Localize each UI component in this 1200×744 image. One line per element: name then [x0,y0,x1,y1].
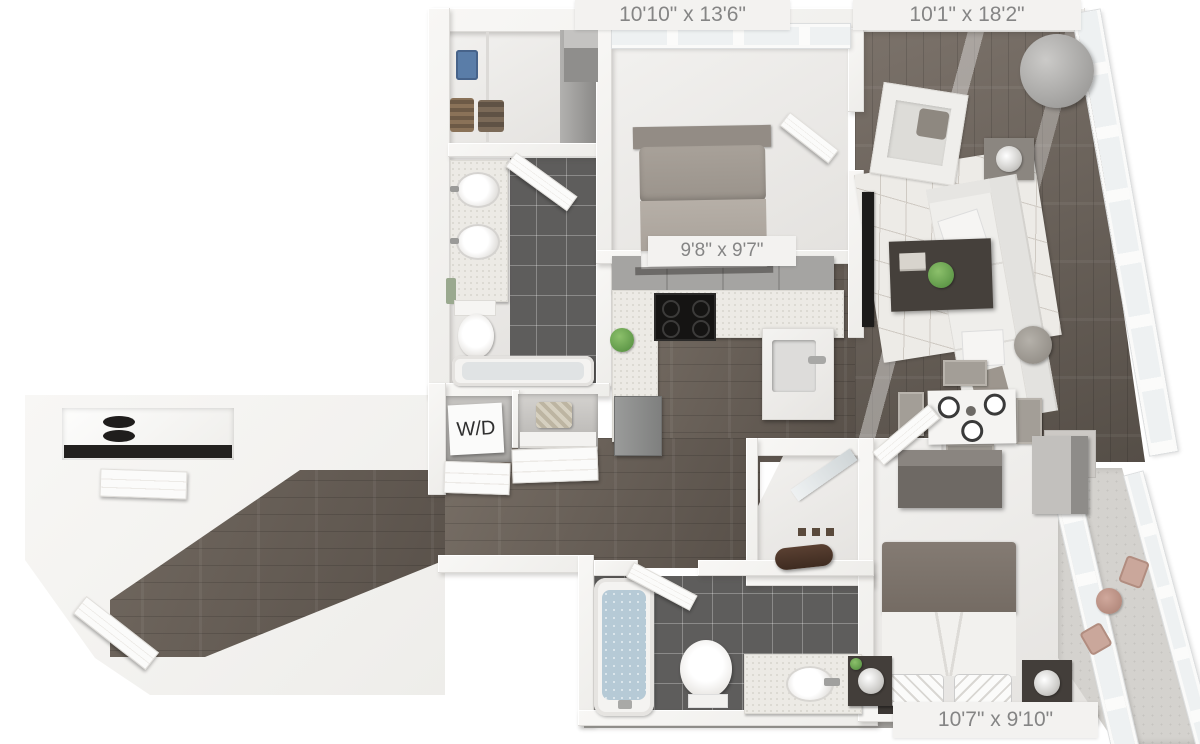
bathtub2 [594,578,654,716]
refrigerator [614,396,662,456]
kitchen-plant [610,328,634,352]
wicker-basket [536,402,572,428]
dining-table [928,389,1017,445]
island-sink-basin [772,340,816,392]
round-column [1020,34,1094,108]
table-vase [966,406,976,416]
toilet2-bowl [680,640,732,698]
bathtub2-faucet [618,700,632,709]
wall-left [428,8,450,398]
closet2-shoes [798,528,834,536]
wall-hallway-bottom [438,555,590,573]
faucet-1 [450,186,459,192]
lamp-left [858,668,884,694]
coffee-table-plant [928,262,955,289]
coffee-table-books [899,253,926,270]
vanity-sink-1 [456,172,500,208]
wardrobe-top [898,450,1002,466]
place-setting-2 [984,393,1006,415]
burner-2 [692,300,710,318]
wd-closet-door [443,461,510,495]
bistro-table [1096,588,1122,614]
vanity-sink-2 [456,224,500,260]
wall-kitchen-left [596,262,612,387]
bed1-pillows [639,145,766,203]
nightstand-right [1022,660,1072,708]
coffee-table [889,238,993,312]
nightstand-left [848,656,892,706]
nightstand-plant [850,658,862,670]
label-living-dimensions: 10'1" x 18'2" [853,0,1081,30]
bed-2 [878,538,1020,714]
label-kitchen-dimensions: 9'8" x 9'7" [648,236,796,266]
linen-closet-door [511,447,598,484]
wardrobe-front [898,466,1002,508]
bed2-duvet [882,612,1016,676]
burner-1 [662,300,680,318]
lamp-right [1034,670,1060,696]
wall-bedroom1-left [596,28,612,264]
place-setting-1 [938,396,960,418]
faucet-2 [450,238,459,244]
bed2-blanket [882,542,1016,614]
armchair [869,82,968,186]
label-bedroom1-dimensions: 10'10" x 13'6" [575,0,790,30]
washer-dryer-unit: W/D [448,403,505,456]
folded-towel [456,50,478,80]
floor-plan: W/D [0,0,1200,744]
side-table-lamp-shade [1014,326,1052,364]
linen-shelf [520,432,596,448]
wardrobe [898,450,1002,508]
vanity2-faucet [824,678,840,686]
burner-3 [662,320,680,338]
bedroom1-column [564,30,598,82]
island-faucet [808,356,826,364]
table-lamp-north [996,146,1022,172]
armchair-pillow [916,108,950,140]
shoe-right [103,430,135,442]
wall-bath2-left [578,555,594,725]
bathtub1-basin [462,362,584,380]
wall-bedroom1-living-a [848,28,864,112]
shoe-left [103,416,135,428]
dining-chair-north [943,360,987,386]
storage-basket [450,98,474,132]
place-setting-3 [961,420,983,442]
tv-screen [862,192,874,327]
label-bedroom2-dimensions: 10'7" x 9'10" [893,702,1098,738]
wall-closet1-bath [448,143,598,157]
bedroom2-column [1032,436,1088,514]
toilet2-tank [688,694,728,708]
folded-clothes [478,100,504,132]
shoe-rack [64,445,232,458]
toilet1-bowl [458,314,494,358]
hall-door [100,468,188,499]
burner-4 [692,320,710,338]
bathtub2-water [602,590,646,700]
